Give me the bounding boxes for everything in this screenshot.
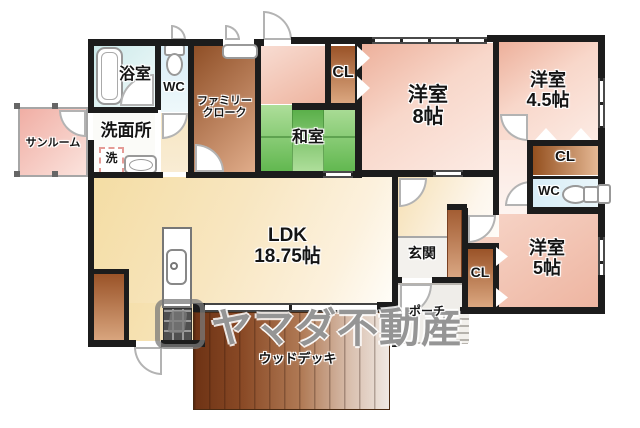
wall [88,39,94,113]
bench-icon [222,44,258,59]
wall [493,35,499,215]
room-label-washer: 洗 [99,152,124,165]
bedroom-8-line1: 洋室 [408,84,448,106]
room-label-wc-top: WC [156,80,192,95]
room-label-closet-top: CL [330,64,356,82]
room-label-porch: ポーチ [403,305,451,318]
sunroom-post-icon [52,103,58,109]
wall [89,269,129,274]
sink-bowl [129,159,153,171]
wall [432,277,467,283]
room-label-bedroom-5: 洋室 5帖 [514,238,580,278]
room-label-sunroom: サンルーム [19,137,87,149]
wall [447,204,467,210]
wall [88,107,158,113]
room-label-wc-right: WC [533,184,565,199]
bedroom-45-line1: 洋室 [530,70,566,90]
family-closet-line2: クローク [203,107,247,119]
room-label-closet-right: CL [550,149,580,166]
wall [88,172,163,178]
room-label-family-closet: ファミリー クローク [193,95,256,120]
wall [598,35,605,78]
sliding-door [323,171,355,178]
door-arc-backdoor [263,11,292,40]
toilet-bowl-icon [166,53,183,76]
wall [292,103,362,110]
floor-plan: 浴室 WC 洗面所 洗 サンルーム ファミリー クローク 和室 CL 洋室 8帖… [0,0,640,428]
watermark-text: ヤマダ不動産 [211,294,463,354]
room-label-closet-bottom: CL [465,265,495,281]
entrance-step-line [398,236,447,238]
sunroom-post-icon [14,103,20,109]
wall [88,340,136,347]
bedroom-8-line2: 8帖 [412,106,443,128]
bedroom-45-line2: 4.5帖 [526,90,569,110]
wall [487,35,605,42]
window [598,78,605,128]
family-closet-line1: ファミリー [197,95,252,107]
door-arc-wc-vent [171,25,186,40]
room-storage-north [261,46,325,104]
room-label-bedroom-45: 洋室 4.5帖 [502,70,594,110]
wc-window-icon [597,184,611,204]
wall [392,277,402,283]
ldk-line1: LDK [268,225,307,246]
watermark-logo-icon [155,299,205,349]
wall [256,171,323,178]
bedroom-5-line1: 洋室 [529,238,565,258]
sunroom-post-icon [52,171,58,177]
room-label-japanese: 和室 [286,129,330,147]
room-label-ldk: LDK 18.75帖 [240,225,335,268]
faucet-icon [170,262,178,270]
window [372,37,487,44]
ldk-line2: 18.75帖 [254,246,321,267]
wall [124,269,129,346]
room-label-wood-deck: ウッドデッキ [250,352,345,367]
room-label-washroom: 洗面所 [94,121,158,140]
door-arc-closet-vent [225,25,240,40]
wall [527,140,605,146]
window [598,237,605,275]
wall [527,207,605,214]
shoe-cabinet [447,208,462,278]
wall [186,172,258,178]
wall [88,140,94,347]
bedroom-5-line2: 5帖 [533,258,561,278]
sliding-door [433,170,463,177]
sunroom-post-icon [14,171,20,177]
room-label-bedroom-8: 洋室 8帖 [396,84,460,129]
wall [533,176,598,179]
wall [463,170,499,177]
room-label-entrance: 玄関 [400,246,444,262]
closet-bottom-left [93,274,124,341]
